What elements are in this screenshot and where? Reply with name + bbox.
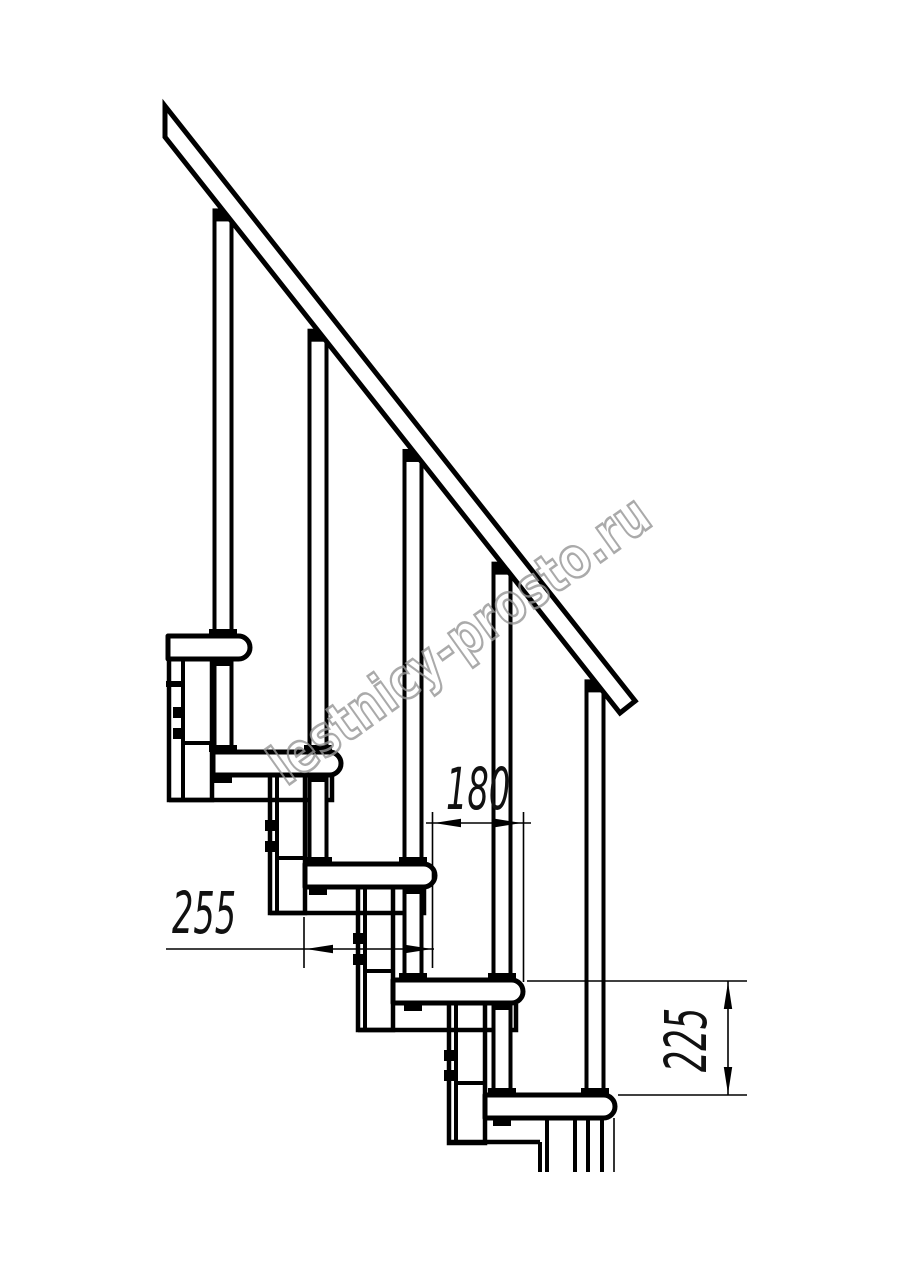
- dimension-label-255: 255: [172, 884, 236, 942]
- treads: [168, 636, 615, 1118]
- floor-legs: [540, 1118, 614, 1172]
- dimension-label-225: 225: [657, 1008, 715, 1072]
- handrail: [165, 106, 635, 713]
- dimension-label-180: 180: [446, 760, 510, 818]
- staircase-drawing-page: 255 180 225 lestnicy-prosto.ru: [0, 0, 914, 1280]
- staircase-technical-drawing: [0, 0, 914, 1280]
